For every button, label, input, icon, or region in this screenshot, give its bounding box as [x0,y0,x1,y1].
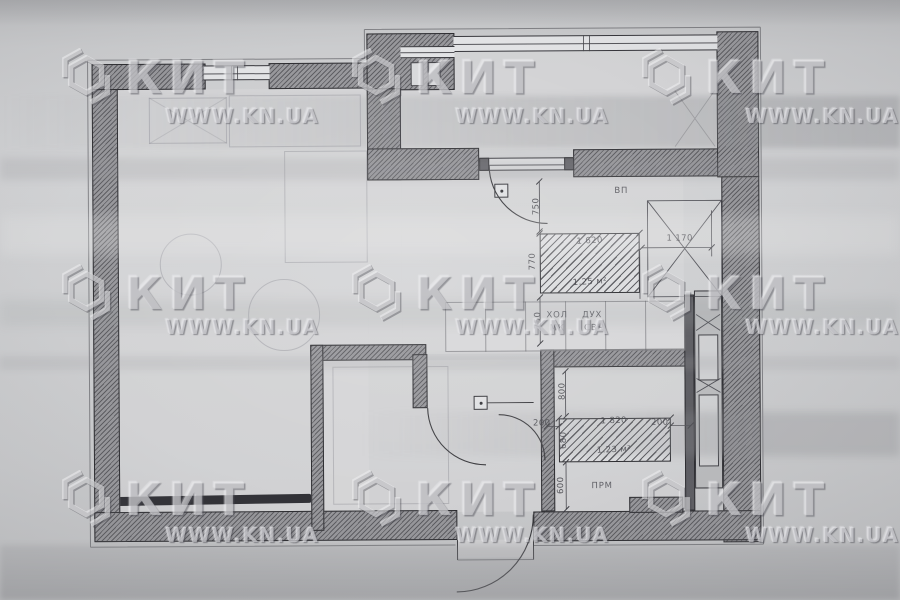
dim-tub-gap-right: 200 [645,418,675,428]
scanned-floor-plan: 750 1 620 770 1 170 1.25 м² 750 800 200 … [0,0,900,600]
dim-800: 800 [557,376,567,406]
dim-750-top: 750 [531,191,541,221]
label-microwave: СВЧ [580,323,608,333]
label-oven: ДУХ [578,310,606,320]
dim-tub-height: 680 [559,425,569,455]
dim-600: 600 [556,470,566,500]
label-sink: МК [546,323,568,333]
dim-tub-gap-left: 200 [529,418,555,428]
label-fridge: ХОЛ [544,310,570,320]
dim-gap-right: 1 170 [650,233,710,243]
label-washer: ПРМ [585,481,619,491]
label-vent: ВП [607,186,635,196]
floor-plan: 750 1 620 770 1 170 1.25 м² 750 800 200 … [0,0,900,600]
plan-linework [0,0,900,600]
dim-wardrobe-height: 770 [528,246,538,276]
dim-750-mid: 750 [533,305,543,335]
